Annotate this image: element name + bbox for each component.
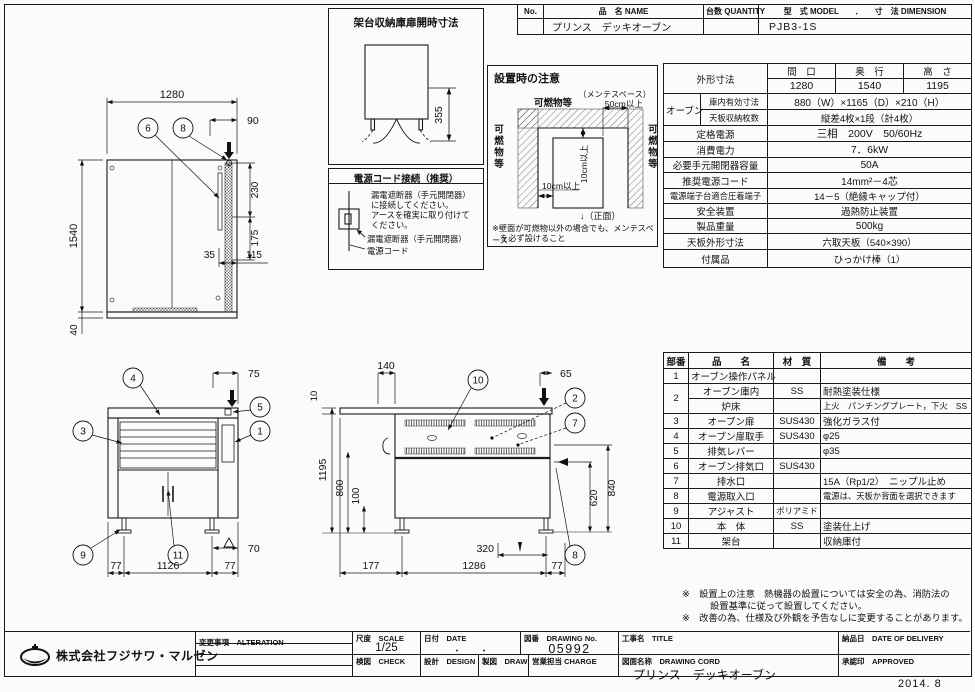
table-row: 11 架台 収納庫付 [664, 534, 972, 549]
delivery-label: 納品日 DATE OF DELIVERY [839, 632, 970, 644]
design-cell: 設計 DESIGN [420, 654, 478, 676]
dim-230: 230 [250, 181, 261, 198]
spec-consumption-value: 7．6kW [768, 142, 972, 158]
table-row: 8 電源取入口 電源は、天板か背面を選択できます [664, 489, 972, 504]
dim-1280: 1280 [160, 89, 184, 101]
spec-depth: 1540 [836, 79, 904, 94]
table-row: 7 排水口 15A（Rp1/2） ニップル止め [664, 474, 972, 489]
callout-8b: 8 [572, 551, 578, 562]
callout-2: 2 [572, 394, 578, 405]
spec-breaker-label: 必要手元開閉器容量 [664, 158, 768, 173]
door-open-title: 架台収納庫扉開時寸法 [329, 15, 483, 30]
part-name: 排水口 [689, 474, 774, 489]
approved-label: 承認印 APPROVED [839, 655, 970, 667]
part-note: 電源は、天板か背面を選択できます [821, 489, 972, 504]
part-note: φ25 [821, 429, 972, 444]
part-note [821, 459, 972, 474]
alteration-cell: 変更事項 ALTERATION [195, 632, 352, 676]
callout-1: 1 [257, 427, 263, 438]
callout-9: 9 [80, 551, 86, 562]
parts-h-mat: 材 質 [774, 353, 821, 369]
header-col-name: 品 名 NAME [544, 5, 704, 19]
install-note-2: を必ず設けること [500, 232, 566, 244]
callout-4: 4 [130, 374, 136, 385]
spec-safety-label: 安全装置 [664, 204, 768, 219]
spec-inner-value: 880（W）×1165（D）×210（H） [768, 94, 972, 110]
dim-140: 140 [377, 360, 395, 372]
table-row: 5 排気レバー φ35 [664, 444, 972, 459]
spec-plate-value: 六取天板（540×390） [768, 234, 972, 250]
spec-rated-value: 三相 200V 50/60Hz [768, 126, 972, 142]
delivery-cell: 納品日 DATE OF DELIVERY [838, 632, 970, 654]
table-row: 9 アジャスト ポリアミド [664, 504, 972, 519]
company-cell: 株式会社フジサワ・マルゼン [4, 632, 195, 676]
part-name: オーブン操作パネル [689, 369, 774, 384]
dim-70: 70 [248, 543, 260, 555]
callout-5: 5 [257, 403, 263, 414]
dim-75: 75 [248, 368, 260, 380]
dim-1195: 1195 [317, 459, 329, 482]
callout-7: 7 [572, 419, 578, 430]
part-name: 電源取入口 [689, 489, 774, 504]
part-note: 収納庫付 [821, 534, 972, 549]
drain-position-arrow [224, 538, 234, 547]
product-name: プリンス デッキオーブン [544, 19, 704, 35]
header-val-no [518, 19, 544, 35]
part-note: 強化ガラス付 [821, 414, 972, 429]
part-material: ポリアミド [774, 504, 821, 519]
part-note: 耐熱塗装仕様 [821, 384, 972, 399]
spec-weight-value: 500kg [768, 219, 972, 234]
side-inlet-arrow [558, 458, 568, 466]
dim-77-left: 77 [110, 561, 122, 572]
breaker-label: 漏電遮断器（手元開閉器） [367, 233, 467, 245]
flammable-left: 可燃物等 [490, 124, 504, 170]
part-name: 本 体 [689, 519, 774, 534]
parts-table: 部番 品 名 材 質 備 考 1 オーブン操作パネル 2 オーブン庫内 SS 耐… [663, 352, 972, 549]
plan-body [107, 160, 237, 318]
spec-accessory-label: 付属品 [664, 250, 768, 268]
part-material [774, 444, 821, 459]
table-row: 炉床 上火 パンチングプレート，下火 SS [664, 399, 972, 414]
project-title-label: 工事名 TITLE [619, 632, 838, 644]
install-caution-box: 設置時の注意 [487, 65, 658, 247]
header-table: No. 品 名 NAME 台数 QUANTITY 型 式 MODEL ． 寸 法… [517, 4, 972, 35]
rear-power-arrow [539, 388, 549, 406]
dim-800: 800 [335, 479, 346, 496]
spec-inner-label: 庫内有効寸法 [701, 94, 768, 110]
alteration-row-3 [196, 655, 352, 666]
part-material: SS [774, 384, 821, 399]
company-logo-icon [18, 643, 52, 667]
dim-35: 35 [204, 250, 216, 261]
power-text-4: ください。 [371, 219, 413, 231]
flammable-right: 可燃物等 [644, 124, 658, 170]
date-cell: 日付 DATE ・ ・ [420, 632, 520, 654]
check-cell: 検図 CHECK [352, 654, 420, 676]
year-stamp: 2014. 8 [898, 678, 942, 690]
front-callouts: 4 5 3 1 9 11 [73, 368, 270, 565]
part-name: オーブン排気口 [689, 459, 774, 474]
draw-cell: 製図 DRAW [478, 654, 528, 676]
front-mark: ↓（正面） [580, 209, 621, 222]
header-col-qty: 台数 QUANTITY [704, 5, 759, 19]
dim-65: 65 [560, 368, 572, 380]
design-label: 設計 DESIGN [421, 655, 478, 667]
dim-115: 115 [246, 250, 262, 261]
spec-accessory-value: ひっかけ棒（1） [768, 250, 972, 268]
part-material [774, 534, 821, 549]
spec-terminal-value: 14－5（絶縁キャップ付） [768, 189, 972, 204]
dim-77: 77 [551, 561, 563, 572]
callout-6: 6 [145, 124, 151, 135]
part-name: オーブン扉取手 [689, 429, 774, 444]
spec-oven-label: オーブン [664, 94, 701, 126]
alteration-row-4 [196, 666, 352, 677]
check-label: 検図 CHECK [353, 655, 420, 667]
side-view: 10 2 7 8 140 65 10 1195 800 100 840 620 … [308, 358, 668, 590]
drain-down-arrow [518, 542, 522, 552]
spec-depth-header: 奥 行 [836, 64, 904, 79]
spec-cord-label: 推奨電源コード [664, 173, 768, 189]
plan-view: 6 8 1280 90 1540 40 230 175 35 115 [50, 58, 325, 350]
power-cord-box: 電源コード接続（推奨） 漏電遮断器（手元開閉器） に接続してください。 アースを… [328, 168, 484, 270]
table-row: 3 オーブン扉 SUS430 強化ガラス付 [664, 414, 972, 429]
alteration-row-1: 変更事項 ALTERATION [196, 632, 352, 644]
dim-77-right: 77 [224, 561, 236, 572]
spec-table: 外形寸法 間 口 奥 行 高 さ 1280 1540 1195 オーブン 庫内有… [663, 63, 972, 268]
spec-plate-label: 天板外形寸法 [664, 234, 768, 250]
project-title-cell: 工事名 TITLE [618, 632, 838, 654]
part-material: SUS430 [774, 414, 821, 429]
part-note: 上火 パンチングプレート，下火 SS [821, 399, 972, 414]
part-note [821, 504, 972, 519]
spec-tray-label: 天板収納枚数 [701, 110, 768, 126]
part-name: オーブン庫内 [689, 384, 774, 399]
callout-3: 3 [80, 427, 86, 438]
front-view: 4 5 3 1 9 11 75 70 77 1126 77 [62, 358, 312, 590]
part-material [774, 474, 821, 489]
spec-breaker-value: 50A [768, 158, 972, 173]
draw-label: 製図 DRAW [479, 655, 528, 667]
parts-h-note: 備 考 [821, 353, 972, 369]
spec-consumption-label: 消費電力 [664, 142, 768, 158]
dim-1286: 1286 [462, 560, 486, 572]
dim-620: 620 [589, 489, 600, 506]
dim-90: 90 [247, 115, 259, 127]
part-material: SS [774, 519, 821, 534]
door-open-drawing: 355 [329, 31, 483, 163]
spec-tray-value: 縦差4枚×1段（計4枚） [768, 110, 972, 126]
dim-320: 320 [476, 543, 494, 555]
model-number: PJB3-1S [759, 19, 972, 35]
table-row: 6 オーブン排気口 SUS430 [664, 459, 972, 474]
header-col-model: 型 式 MODEL ． 寸 法 DIMENSION [759, 5, 972, 19]
header-val-qty [704, 19, 759, 35]
front-body [108, 408, 238, 533]
callout-10: 10 [472, 376, 484, 387]
spec-rated-label: 定格電源 [664, 126, 768, 142]
dim-177: 177 [363, 561, 380, 572]
part-name: オーブン扉 [689, 414, 774, 429]
clearance-horizontal: 10cm以上 [542, 180, 580, 192]
charge-label: 営業担当 CHARGE [529, 655, 618, 667]
flammable-top: 可燃物等 [534, 95, 572, 109]
dim-1126: 1126 [157, 560, 180, 572]
remark-line-3: ※ 改善の為、仕様及び外観を予告なしに変更することがあります。 [682, 610, 968, 624]
part-material [774, 399, 821, 414]
part-name: 排気レバー [689, 444, 774, 459]
spec-width: 1280 [768, 79, 836, 94]
drawing-name-value: プリンス デッキオーブン [619, 666, 838, 683]
spec-safety-value: 過熱防止装置 [768, 204, 972, 219]
power-box-title: 電源コード接続（推奨） [329, 169, 483, 184]
dim-355: 355 [433, 106, 445, 124]
spec-outer-label: 外形寸法 [664, 64, 768, 94]
dim-100: 100 [351, 487, 362, 504]
scale-cell: 尺度 SCALE 1/25 [352, 632, 420, 654]
door-open-box: 架台収納庫扉開時寸法 355 [328, 8, 484, 165]
part-note: 15A（Rp1/2） ニップル止め [821, 474, 972, 489]
part-material: SUS430 [774, 429, 821, 444]
alteration-label: 変更事項 ALTERATION [196, 638, 284, 647]
table-row: 4 オーブン扉取手 SUS430 φ25 [664, 429, 972, 444]
parts-h-name: 品 名 [689, 353, 774, 369]
part-material [774, 369, 821, 384]
part-note [821, 369, 972, 384]
part-material: SUS430 [774, 459, 821, 474]
dim-175: 175 [250, 229, 261, 246]
dim-1540: 1540 [68, 224, 80, 248]
install-title: 設置時の注意 [494, 70, 560, 86]
date-label: 日付 DATE [421, 632, 520, 644]
charge-cell: 営業担当 CHARGE [528, 654, 618, 676]
title-block: 株式会社フジサワ・マルゼン 変更事項 ALTERATION 尺度 SCALE 1… [4, 631, 970, 676]
side-body [340, 408, 553, 533]
spec-cord-value: 14mm²－4芯 [768, 173, 972, 189]
spec-height: 1195 [904, 79, 972, 94]
spec-weight-label: 製品重量 [664, 219, 768, 234]
table-row: 2 オーブン庫内 SS 耐熱塗装仕様 [664, 384, 972, 399]
table-row: 10 本 体 SS 塗装仕上げ [664, 519, 972, 534]
table-row: 1 オーブン操作パネル [664, 369, 972, 384]
dim-840: 840 [607, 479, 618, 496]
plan-callouts: 6 8 [138, 118, 227, 198]
callout-8: 8 [180, 124, 186, 135]
spec-terminal-label: 電源端子台適合圧着端子 [664, 189, 768, 204]
part-name: 架台 [689, 534, 774, 549]
header-col-no: No. [518, 5, 544, 19]
part-material [774, 489, 821, 504]
side-callouts: 10 2 7 8 [448, 370, 585, 565]
drawing-name-cell: 図面名称 DRAWING CORD プリンス デッキオーブン [618, 654, 838, 676]
spec-width-header: 間 口 [768, 64, 836, 79]
drawing-sheet: No. 品 名 NAME 台数 QUANTITY 型 式 MODEL ． 寸 法… [0, 0, 975, 692]
part-note: φ35 [821, 444, 972, 459]
approved-cell: 承認印 APPROVED [838, 654, 970, 676]
breaker-symbol [339, 191, 359, 251]
dim-40: 40 [69, 324, 80, 336]
part-note: 塗装仕上げ [821, 519, 972, 534]
spec-height-header: 高 さ [904, 64, 972, 79]
clearance-vertical: 10cm以上 [578, 145, 590, 183]
part-name: 炉床 [689, 399, 774, 414]
power-position-arrow [227, 390, 237, 407]
maintenance-50cm: 50cm以上 [605, 98, 643, 110]
cord-label: 電源コード [367, 245, 409, 257]
part-name: アジャスト [689, 504, 774, 519]
drawing-no-cell: 図番 DRAWING No. 05992 [520, 632, 618, 654]
side-vents [405, 420, 535, 454]
dim-10: 10 [309, 391, 320, 402]
